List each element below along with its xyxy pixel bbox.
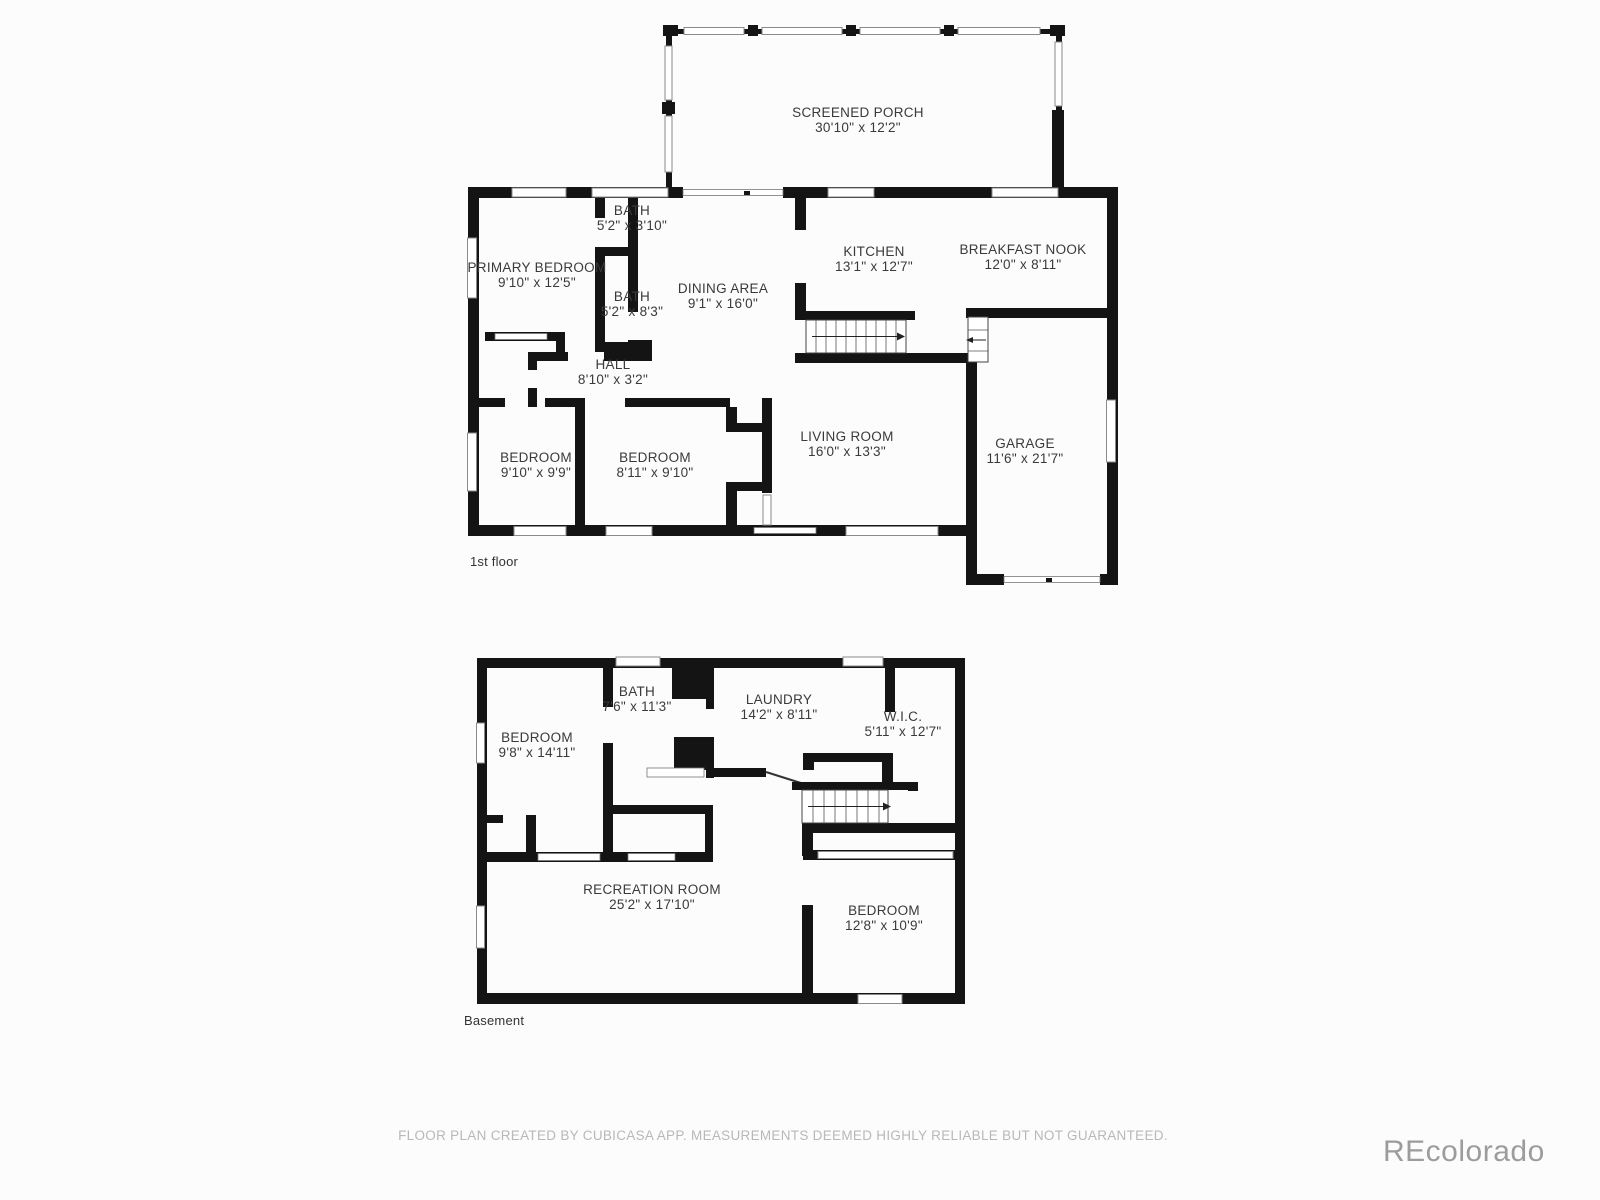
room-label-dining-area: DINING AREA 9'1" x 16'0" [678, 281, 768, 311]
room-label-living-room: LIVING ROOM 16'0" x 13'3" [800, 429, 893, 459]
first-floor-plan [440, 10, 1140, 610]
room-label-breakfast-nook: BREAKFAST NOOK 12'0" x 8'11" [960, 242, 1087, 272]
room-label-hall: HALL 8'10" x 3'2" [578, 357, 648, 387]
room-label-basement-bedroom: BEDROOM 9'8" x 14'11" [499, 730, 576, 760]
basement-caption: Basement [464, 1013, 524, 1028]
room-label-garage: GARAGE 11'6" x 21'7" [987, 436, 1064, 466]
room-label-basement-bedroom-2: BEDROOM 12'8" x 10'9" [845, 903, 923, 933]
entry-steps [966, 317, 988, 362]
recolorado-watermark: REcolorado [1383, 1135, 1545, 1169]
room-label-laundry: LAUNDRY 14'2" x 8'11" [741, 692, 818, 722]
room-label-wic: W.I.C. 5'11" x 12'7" [865, 709, 942, 739]
room-label-bath-lower: BATH 5'2" x 8'3" [601, 289, 663, 319]
room-label-kitchen: KITCHEN 13'1" x 12'7" [835, 244, 913, 274]
room-label-screened-porch: SCREENED PORCH 30'10" x 12'2" [792, 105, 924, 135]
first-floor-caption: 1st floor [470, 554, 518, 569]
basement-staircase [802, 790, 891, 823]
room-label-bedroom-left: BEDROOM 9'10" x 9'9" [500, 450, 572, 480]
room-label-primary-bedroom: PRIMARY BEDROOM 9'10" x 12'5" [467, 260, 606, 290]
floor-plan-page: SCREENED PORCH 30'10" x 12'2" PRIMARY BE… [0, 0, 1600, 1200]
room-label-bedroom-middle: BEDROOM 8'11" x 9'10" [617, 450, 694, 480]
first-floor-staircase [806, 320, 906, 353]
room-label-bath-upper: BATH 5'2" x 3'10" [597, 203, 667, 233]
disclaimer-text: FLOOR PLAN CREATED BY CUBICASA APP. MEAS… [398, 1128, 1168, 1143]
basement-plan [440, 630, 1000, 1030]
room-label-basement-bath: BATH 7'6" x 11'3" [602, 684, 671, 714]
room-label-recreation-room: RECREATION ROOM 25'2" x 17'10" [583, 882, 721, 912]
